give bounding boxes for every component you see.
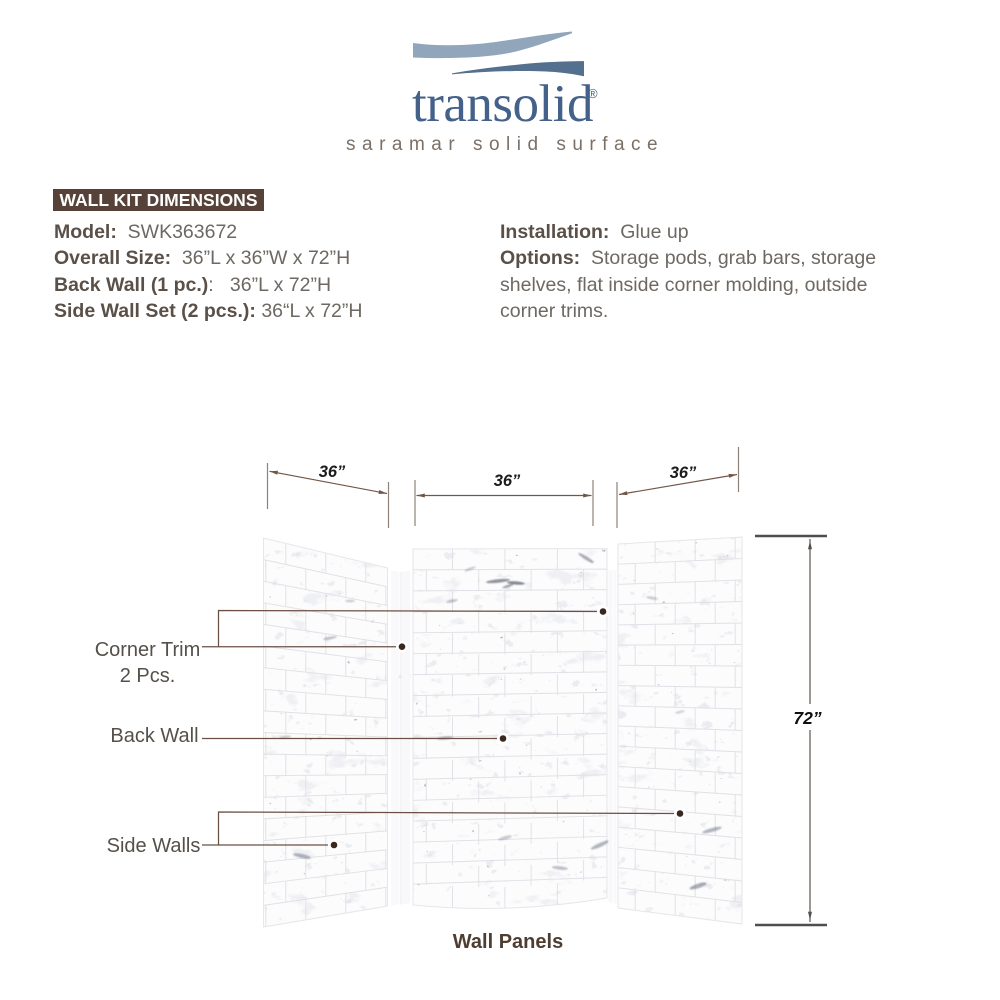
svg-text:36”: 36”: [670, 464, 697, 482]
svg-text:72”: 72”: [793, 708, 821, 728]
svg-text:36”: 36”: [494, 472, 521, 490]
svg-text:36”: 36”: [319, 463, 346, 481]
